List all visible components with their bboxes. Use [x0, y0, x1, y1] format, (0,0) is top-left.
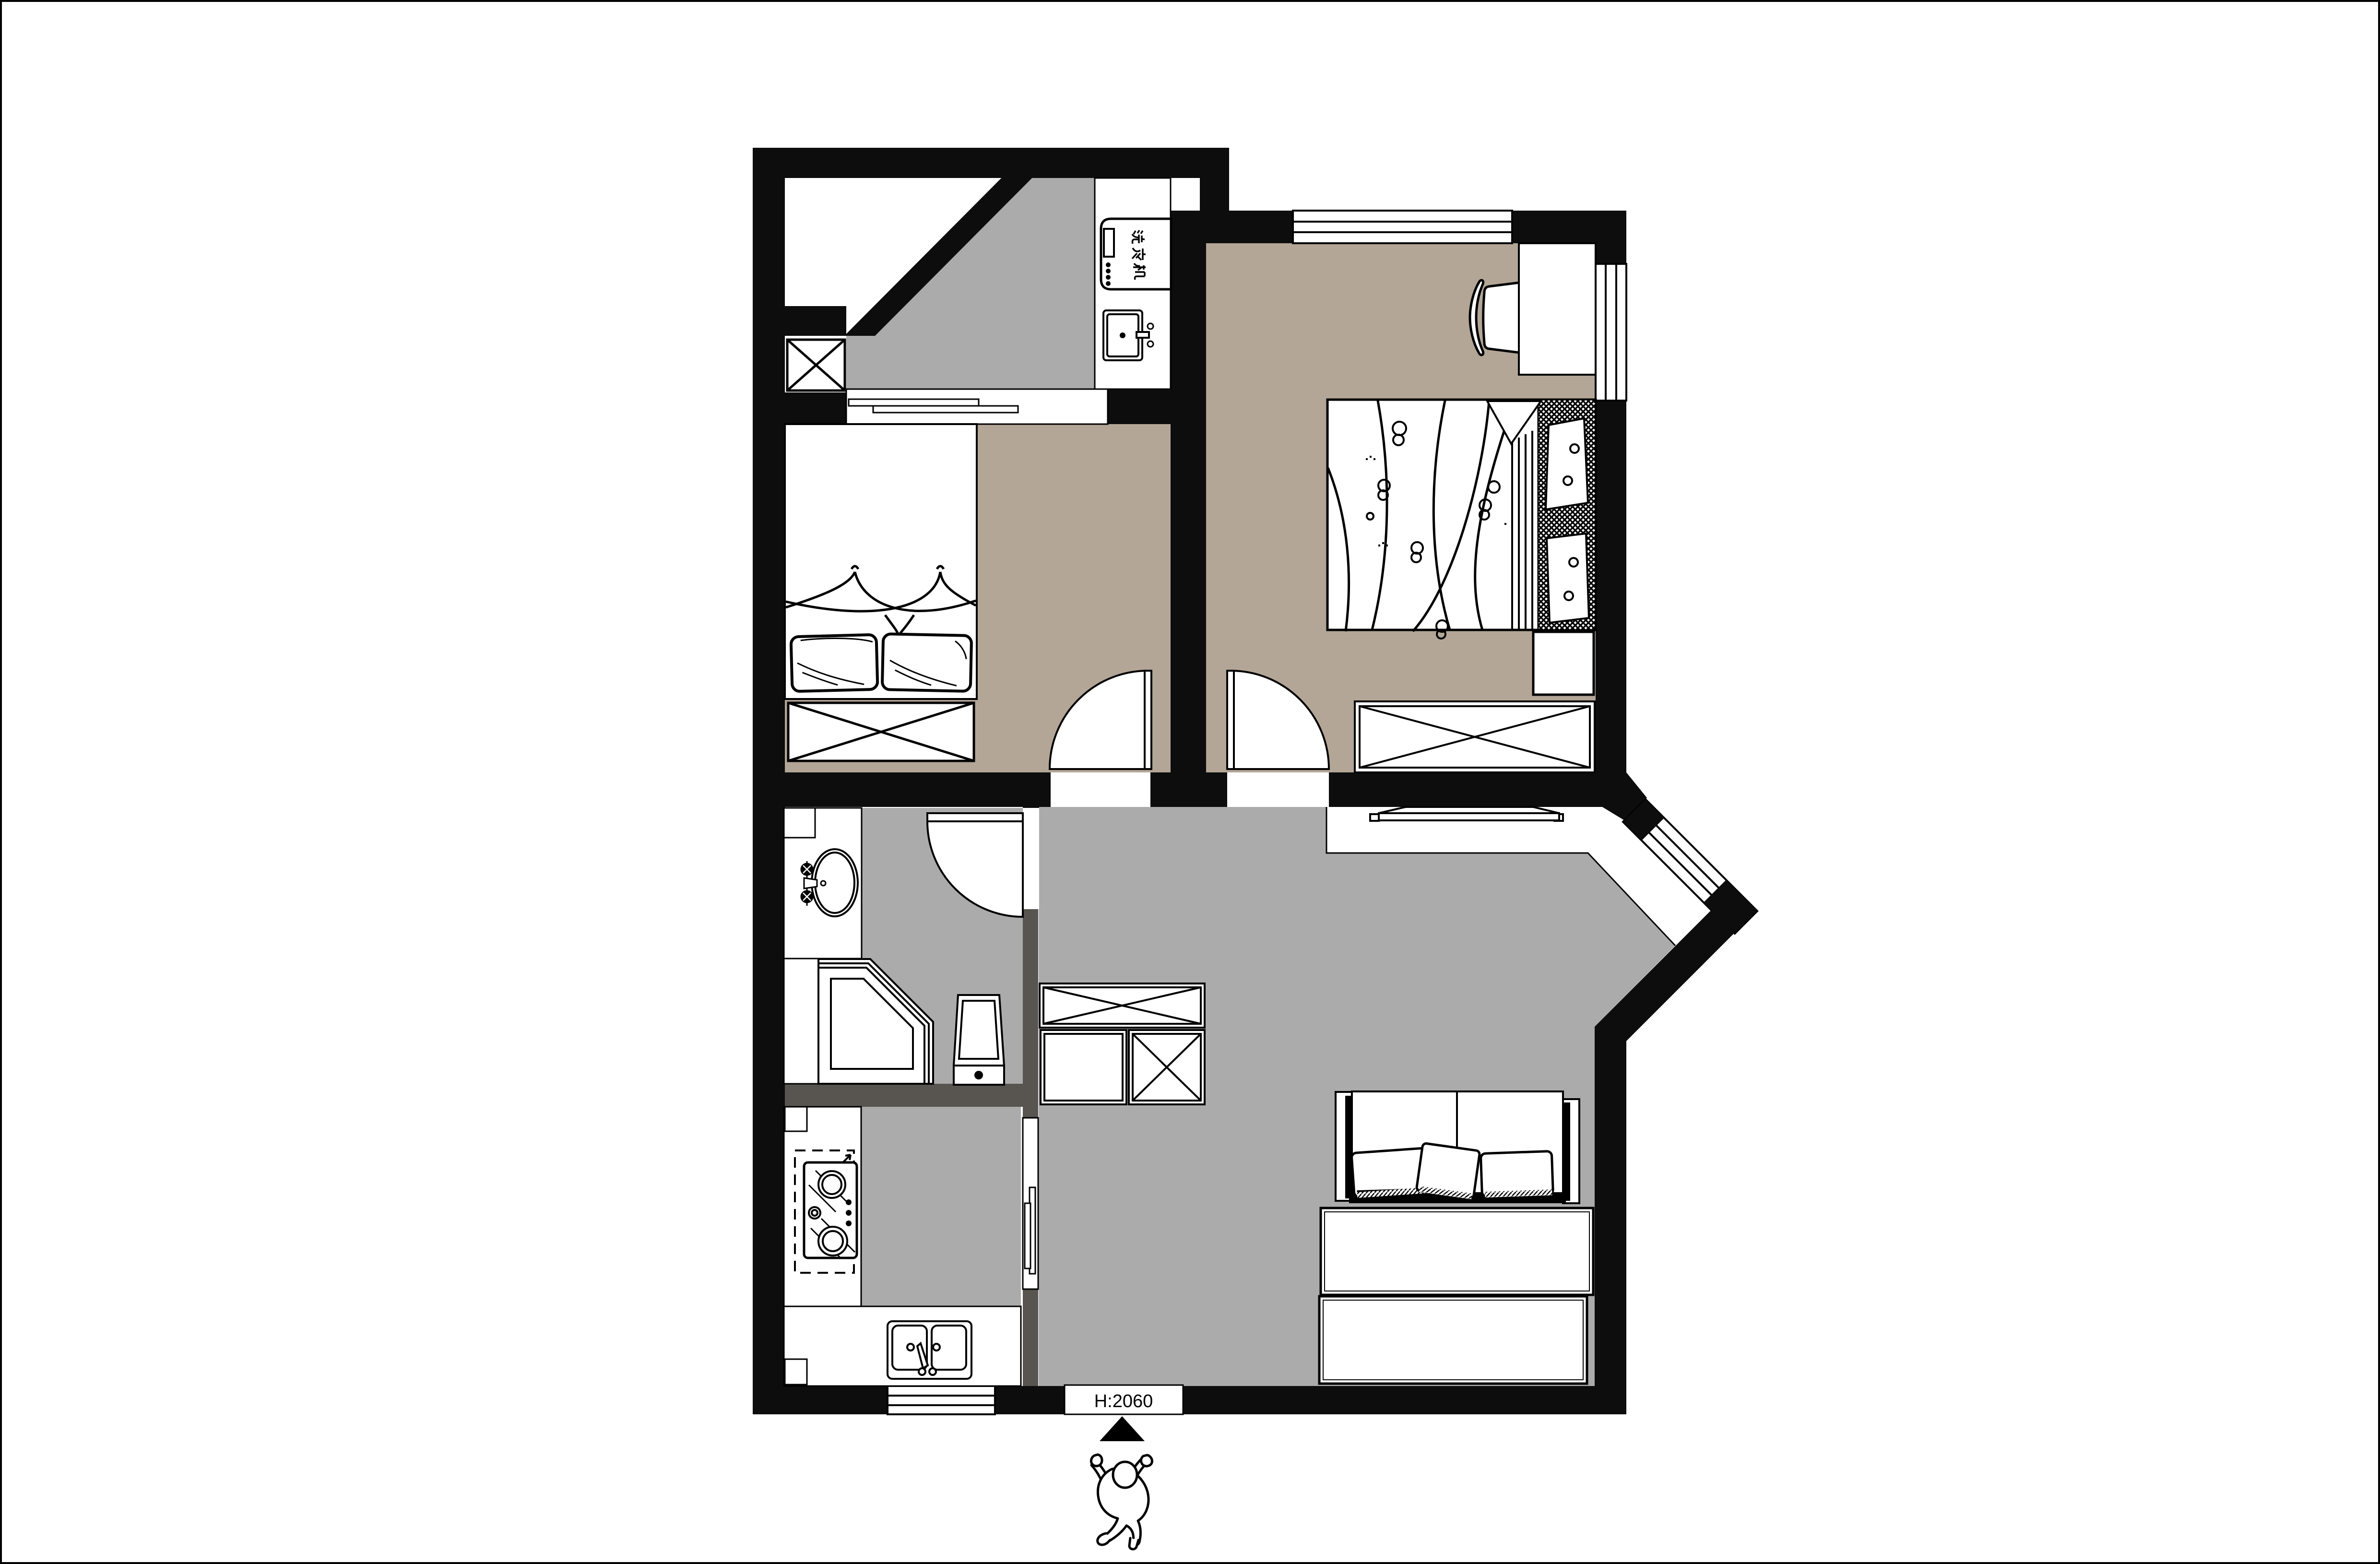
- svg-text:H:2060: H:2060: [1094, 1391, 1153, 1411]
